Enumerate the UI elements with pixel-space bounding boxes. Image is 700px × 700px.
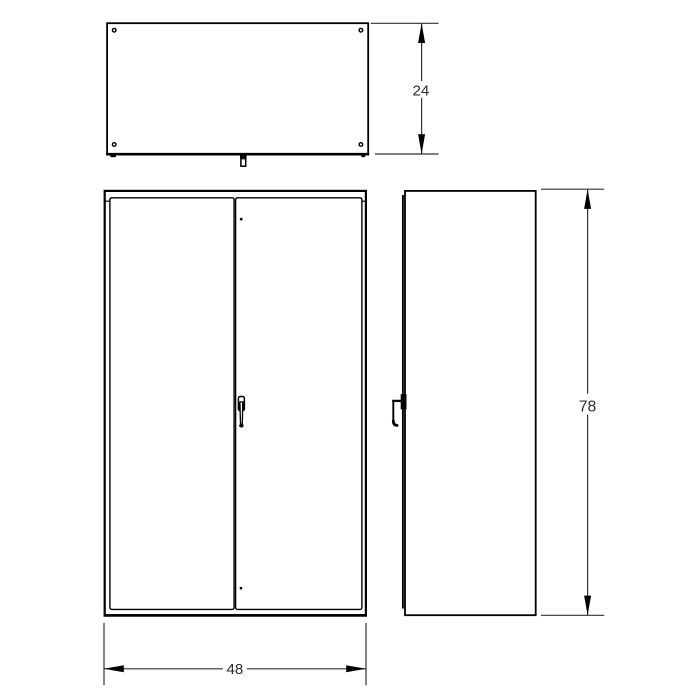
svg-text:24: 24 — [413, 82, 430, 99]
svg-text:48: 48 — [227, 661, 244, 678]
svg-text:78: 78 — [579, 398, 597, 415]
